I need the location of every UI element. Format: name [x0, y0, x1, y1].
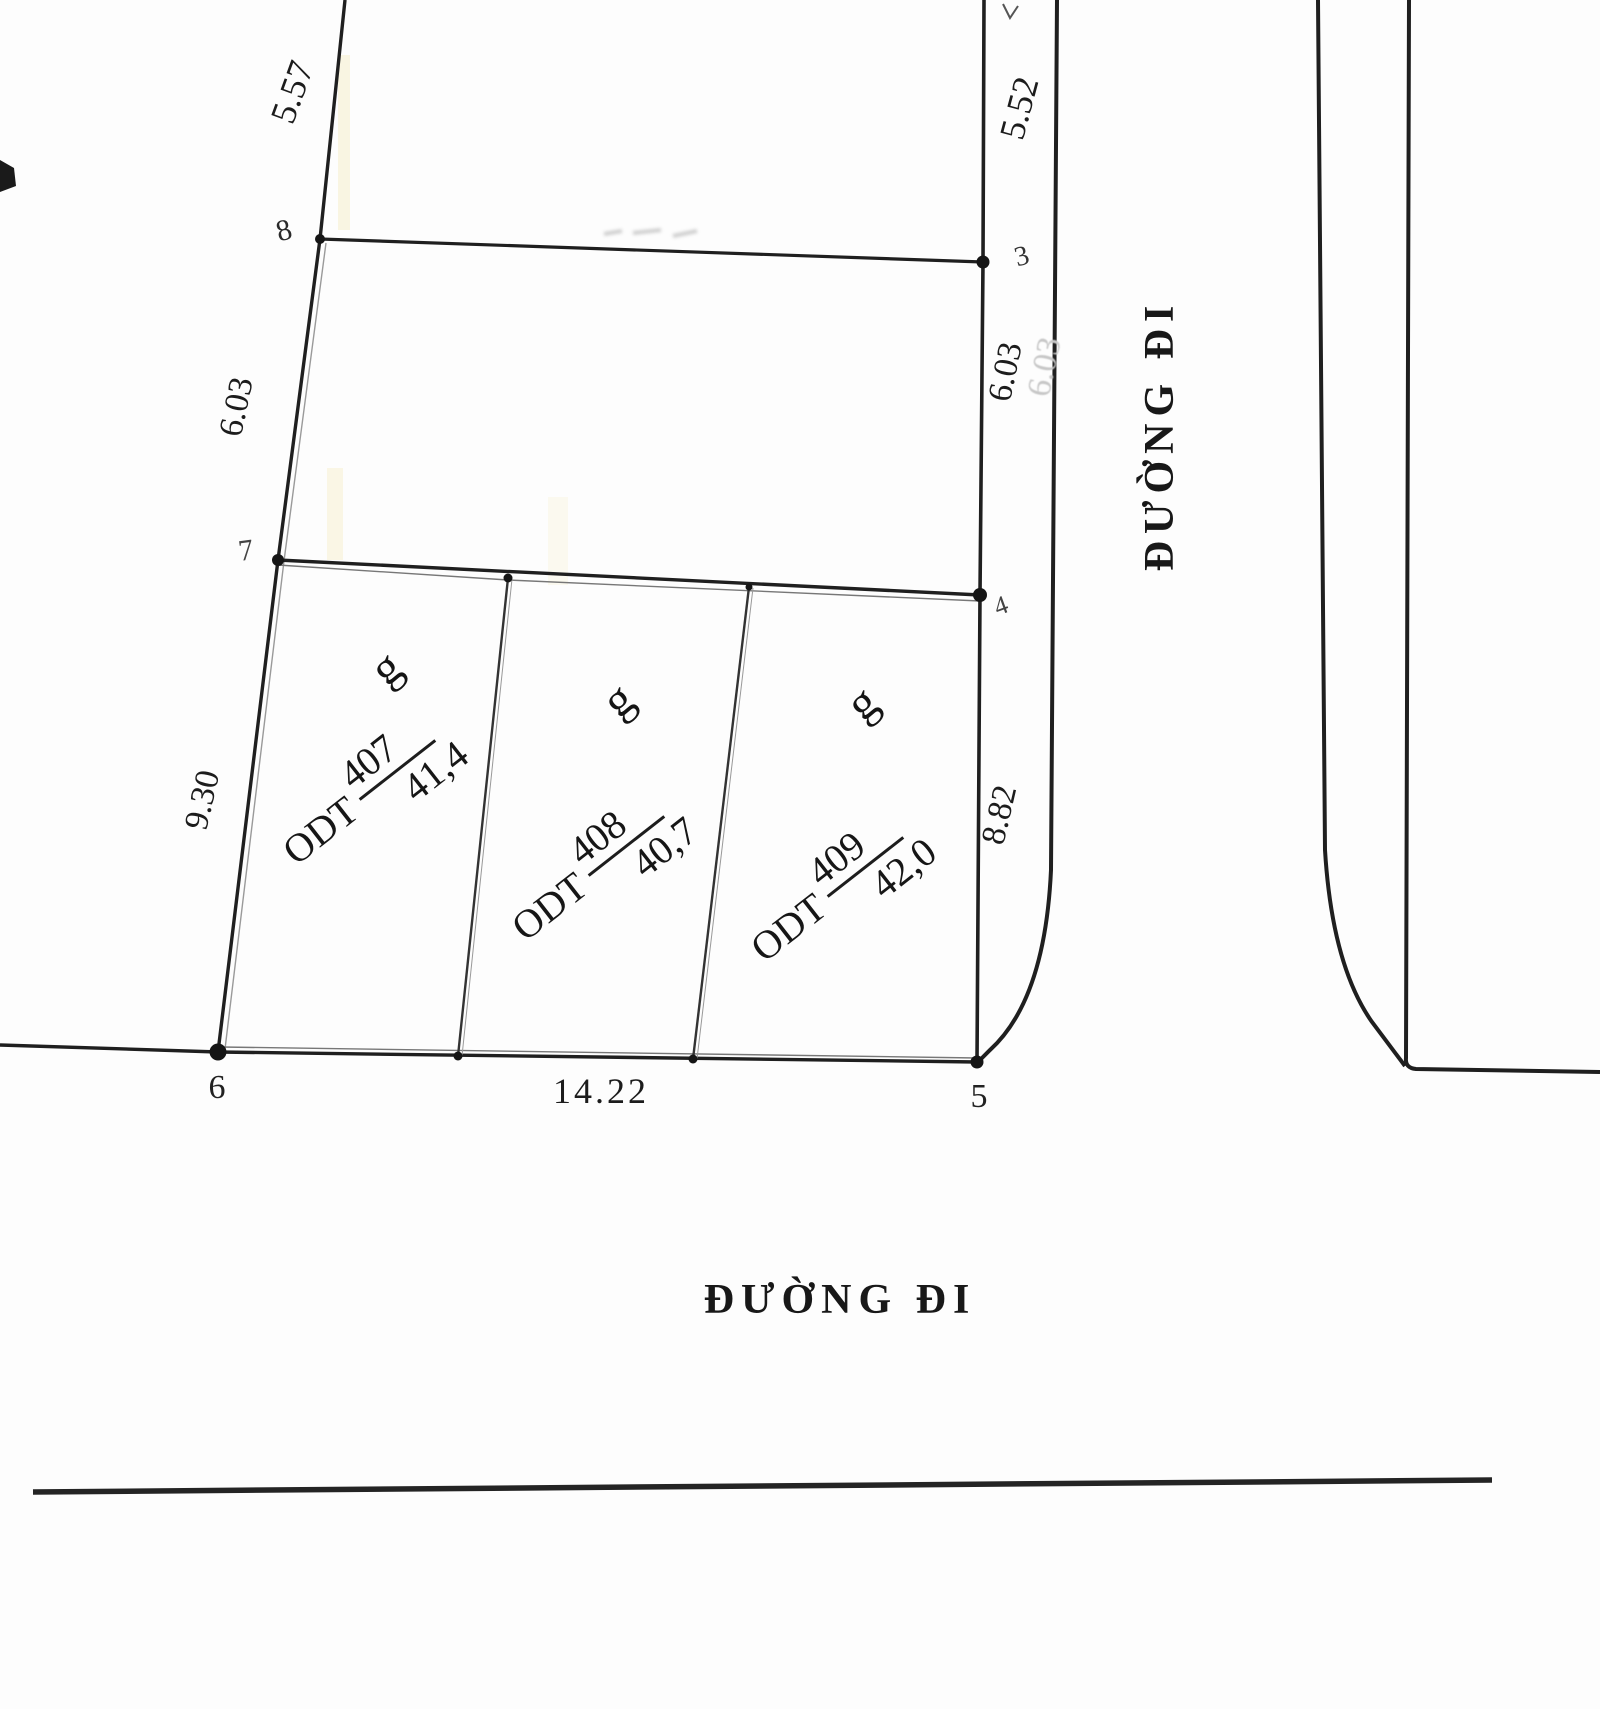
- dimension-14-22: 14.22: [553, 1070, 649, 1112]
- road2-east-edge: [1406, 0, 1600, 1072]
- west-boundary-line: [218, 0, 345, 1052]
- vertex-label-5: 5: [971, 1078, 988, 1116]
- south-road-far-edge: [33, 1480, 1492, 1492]
- parcel-top-double-line: [278, 565, 980, 601]
- divider-407-408-double: [462, 579, 512, 1056]
- scan-streak: [548, 497, 568, 585]
- erased-label-smudge: [604, 230, 697, 236]
- survey-linework: [0, 0, 1600, 1709]
- vertex-dots: [210, 234, 990, 1069]
- road-label-south: ĐƯỜNG ĐI: [704, 1276, 977, 1324]
- edge-line-stub: [0, 160, 16, 192]
- divider-407-408: [458, 578, 508, 1056]
- road1-west-edge: [977, 0, 984, 1062]
- road-label-east: ĐƯỜNG ĐI: [1136, 299, 1184, 572]
- parcel-top-boundary: [278, 560, 980, 595]
- road1-east-edge: [980, 0, 1057, 1060]
- west-boundary-double-line: [225, 243, 326, 1049]
- scan-streak: [338, 55, 350, 230]
- south-road-edge-west: [0, 1045, 218, 1052]
- cadastral-map: 5.57 6.03 9.30 5.52 6.03 6.03 8.82 14.22…: [0, 0, 1600, 1709]
- north-boundary-line: [320, 239, 983, 262]
- divider-408-409-double: [697, 588, 753, 1059]
- cut-glyph-mark: [1003, 4, 1018, 18]
- vertex-label-6: 6: [209, 1069, 226, 1107]
- scan-streak: [327, 468, 343, 560]
- road2-west-edge: [1318, 0, 1405, 1066]
- divider-408-409: [693, 587, 749, 1059]
